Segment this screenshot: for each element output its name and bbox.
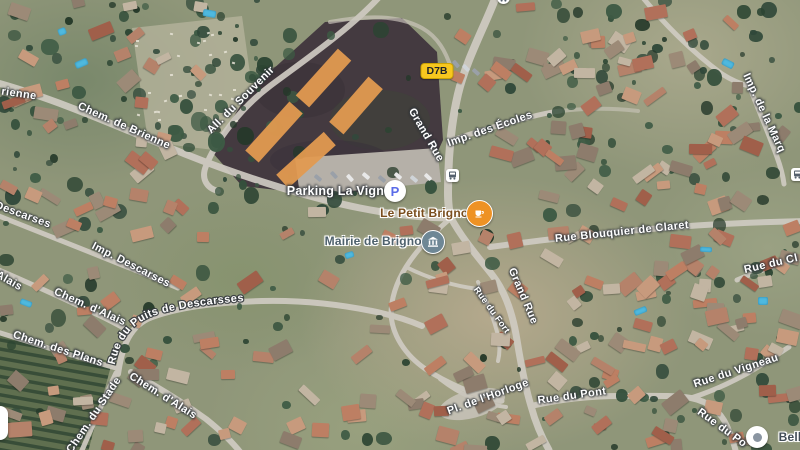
cafe-icon[interactable] <box>466 200 493 227</box>
poi-dot-icon[interactable] <box>746 426 768 448</box>
svg-text:Rue du Puits de Descarsses: Rue du Puits de Descarsses <box>106 292 244 365</box>
satellite-map[interactable]: Rue du Puits de Descarsses rienneChem. d… <box>0 0 800 450</box>
map-control-fragment[interactable] <box>0 406 8 440</box>
poi-label[interactable]: Le Petit Brignon <box>380 206 476 220</box>
poi-label[interactable]: Mairie de Brignon <box>325 234 430 248</box>
poi-label[interactable]: Bell <box>779 430 800 444</box>
town-hall-icon[interactable] <box>421 230 445 254</box>
route-shield: D7B <box>420 63 453 79</box>
parking-icon[interactable]: P <box>384 180 406 202</box>
bus-stop-icon[interactable] <box>791 168 800 181</box>
road-label-rue-du-puits-de-descarsses: Rue du Puits de Descarsses <box>106 292 244 365</box>
poi-label[interactable]: Parking La Vigne <box>287 184 391 198</box>
bus-stop-icon[interactable] <box>446 169 459 182</box>
